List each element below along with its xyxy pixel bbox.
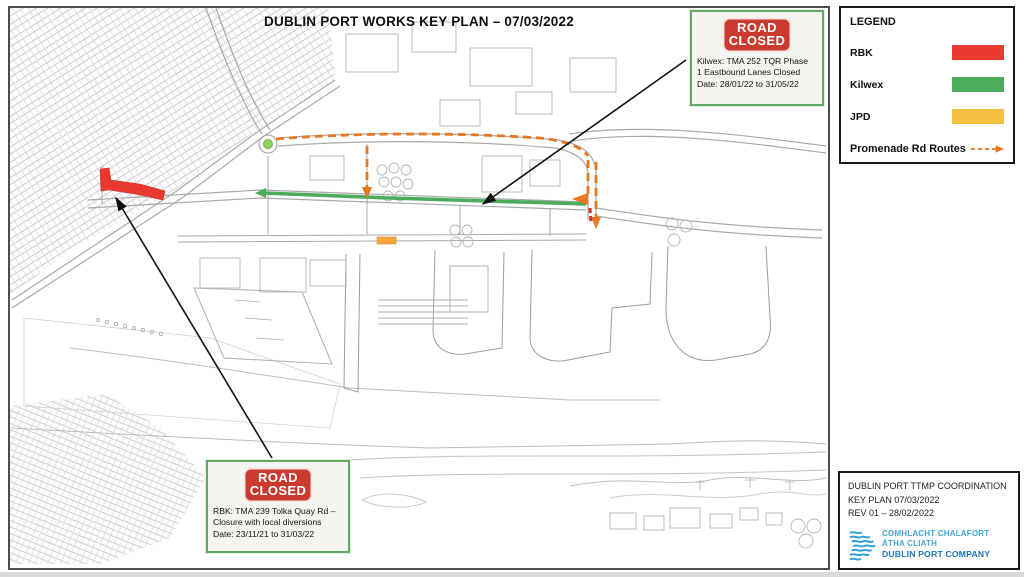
title-block-line: KEY PLAN 07/03/2022 xyxy=(848,494,1010,508)
callout-text-line: Date: 23/11/21 to 31/03/22 xyxy=(213,529,343,541)
road-sign-line: CLOSED xyxy=(723,34,791,47)
title-block-line: DUBLIN PORT TTMP COORDINATION xyxy=(848,480,1010,494)
road-sign-line: ROAD xyxy=(244,471,312,484)
callout-rbk-closure: ROAD CLOSED RBK: TMA 239 Tolka Quay Rd –… xyxy=(206,460,350,553)
callout-text-line: RBK: TMA 239 Tolka Quay Rd – xyxy=(213,506,343,518)
jpd-works-overlay xyxy=(377,237,396,244)
rbk-east-closure-mark xyxy=(590,208,591,223)
kilwex-color-swatch xyxy=(952,77,1004,92)
legend-label: RBK xyxy=(850,47,873,59)
dashed-route-arrow-icon xyxy=(970,143,1004,155)
callout-kilwex-closure: ROAD CLOSED Kilwex: TMA 252 TQR Phase 1 … xyxy=(690,10,824,106)
road-closed-sign: ROAD CLOSED xyxy=(244,468,312,502)
callout-text: RBK: TMA 239 Tolka Quay Rd – Closure wit… xyxy=(208,506,348,542)
road-sign-line: CLOSED xyxy=(244,484,312,497)
road-sign-line: ROAD xyxy=(723,21,791,34)
legend-row-jpd: JPD xyxy=(850,109,1004,124)
legend-title: LEGEND xyxy=(850,16,1004,28)
logo-line: COMHLACHT CHALAFORT xyxy=(882,529,990,539)
bottom-strip xyxy=(0,572,1024,577)
legend-row-promenade-routes: Promenade Rd Routes xyxy=(850,143,1004,155)
wave-d-logo-icon xyxy=(848,527,878,563)
map-frame: DUBLIN PORT WORKS KEY PLAN – 07/03/2022 … xyxy=(8,6,830,570)
page: DUBLIN PORT WORKS KEY PLAN – 07/03/2022 … xyxy=(0,0,1024,577)
legend-label: Kilwex xyxy=(850,79,883,91)
callout-text-line: Closure with local diversions xyxy=(213,517,343,529)
callout-text-line: Kilwex: TMA 252 TQR Phase xyxy=(697,56,817,68)
dublin-port-company-logo: COMHLACHT CHALAFORT ÁTHA CLIATH DUBLIN P… xyxy=(848,527,1010,563)
promenade-route-arrowheads xyxy=(362,187,601,229)
callout-text-line: 1 Eastbound Lanes Closed xyxy=(697,67,817,79)
callout-text-line: Date: 28/01/22 to 31/05/22 xyxy=(697,79,817,91)
legend-row-kilwex: Kilwex xyxy=(850,77,1004,92)
legend-row-rbk: RBK xyxy=(850,45,1004,60)
roundabout-marker xyxy=(264,140,273,149)
legend-label: Promenade Rd Routes xyxy=(850,143,966,155)
callout-text: Kilwex: TMA 252 TQR Phase 1 Eastbound La… xyxy=(692,56,822,92)
logo-line: DUBLIN PORT COMPANY xyxy=(882,549,990,560)
logo-text: COMHLACHT CHALAFORT ÁTHA CLIATH DUBLIN P… xyxy=(882,529,990,560)
promenade-route-overlay xyxy=(276,134,596,218)
rbk-color-swatch xyxy=(952,45,1004,60)
title-block: DUBLIN PORT TTMP COORDINATION KEY PLAN 0… xyxy=(838,471,1020,570)
legend-panel: LEGEND RBK Kilwex JPD Promenade Rd Route… xyxy=(839,6,1015,164)
road-closed-sign: ROAD CLOSED xyxy=(723,18,791,52)
legend-label: JPD xyxy=(850,111,870,123)
title-block-line: REV 01 – 28/02/2022 xyxy=(848,507,1010,521)
logo-line: ÁTHA CLIATH xyxy=(882,539,990,549)
jpd-color-swatch xyxy=(952,109,1004,124)
kilwex-callout-arrow xyxy=(483,60,686,204)
